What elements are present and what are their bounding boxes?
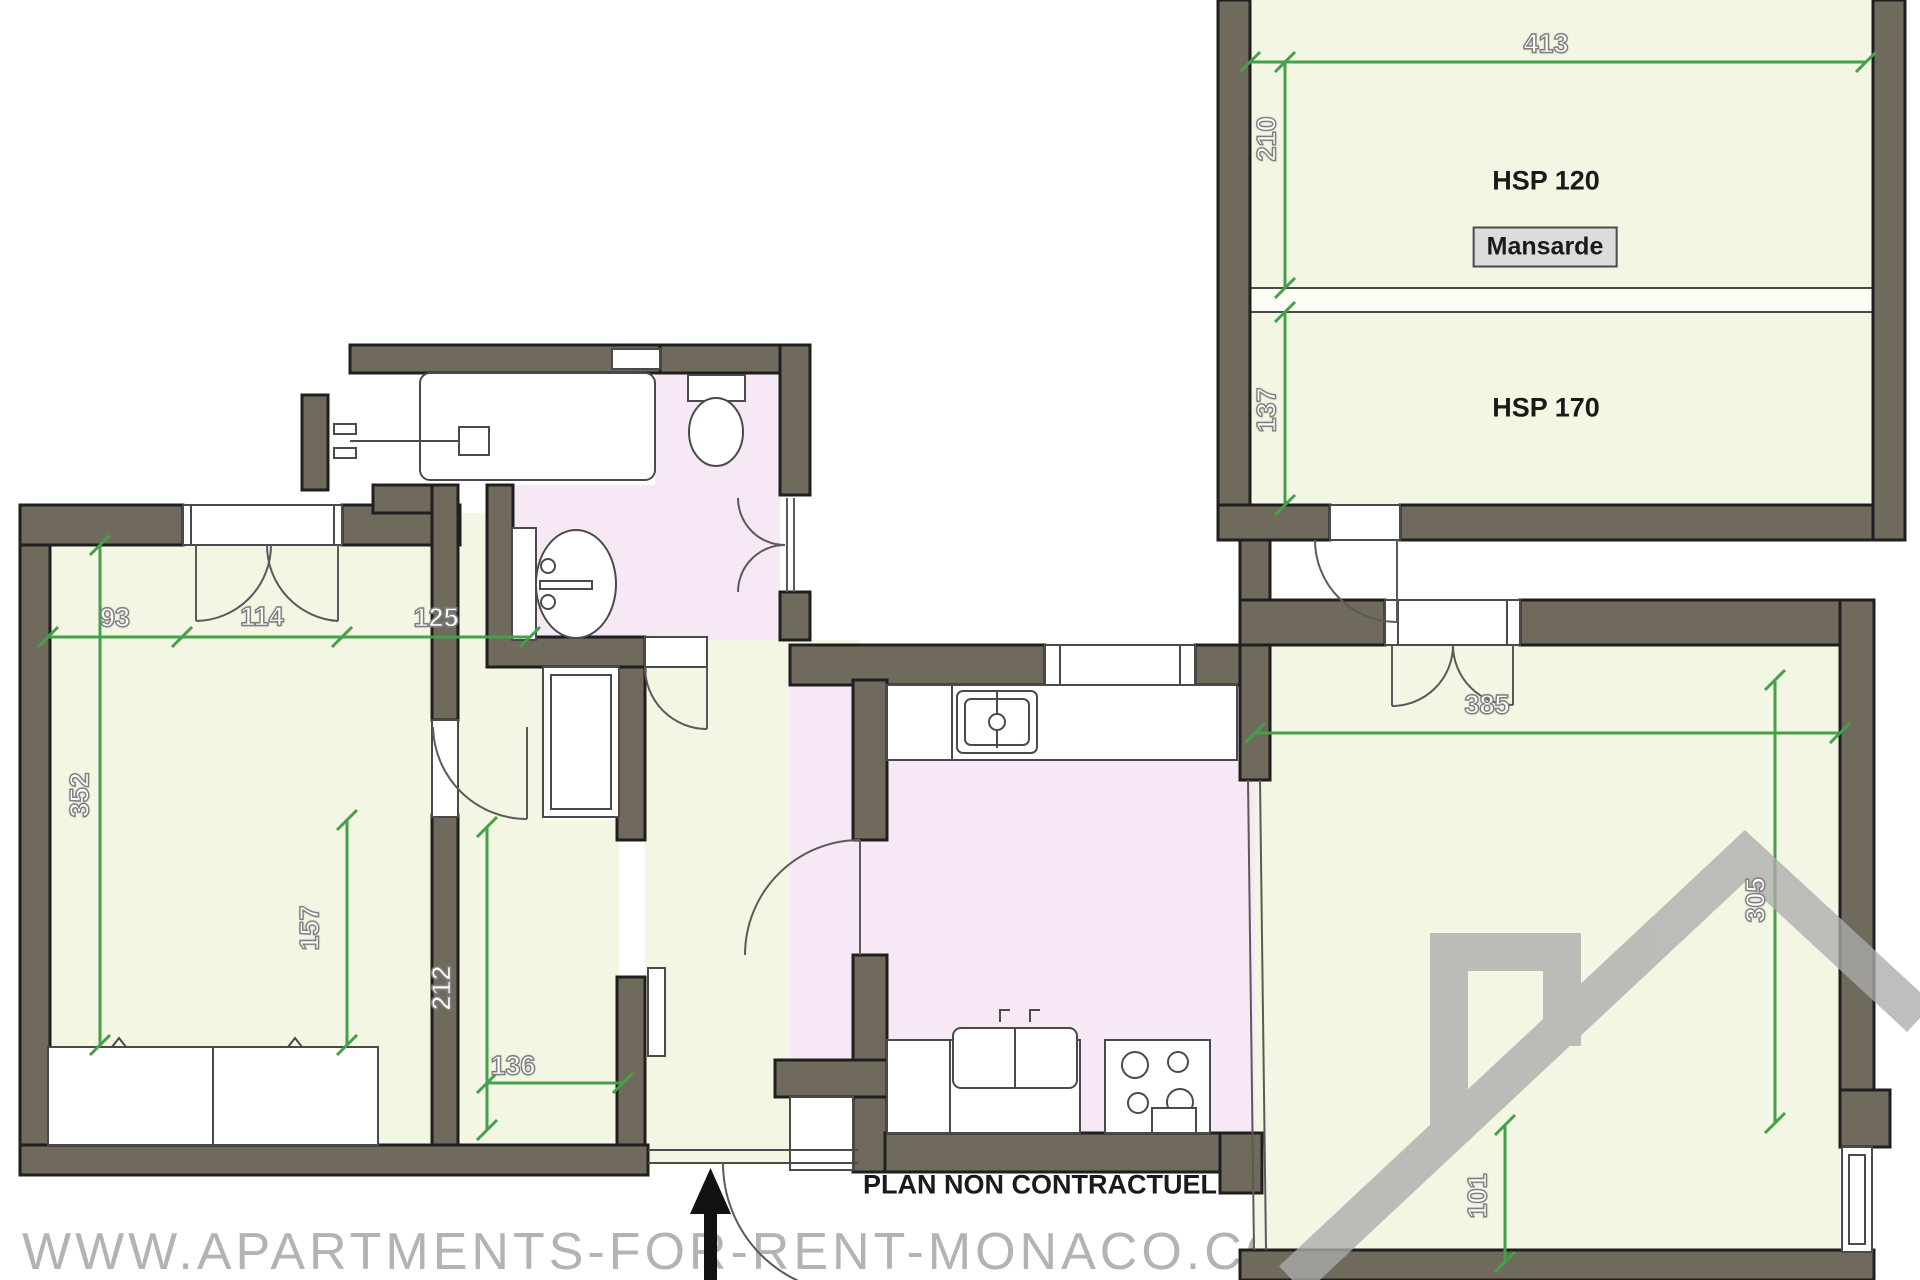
left-room-window [183, 505, 342, 545]
laundry-window [612, 349, 660, 369]
middle-room [458, 820, 619, 1145]
stove [1105, 1040, 1210, 1133]
floor-plan: WWW.APARTMENTS-FOR-RENT-MONACO.COM [0, 0, 1920, 1280]
left-room-closet [48, 1038, 378, 1145]
mansarde-door-frame [1330, 505, 1400, 540]
bathroom-sink [512, 528, 616, 640]
radiator [648, 968, 665, 1056]
kitchen-window [1045, 645, 1195, 685]
toilet [688, 375, 745, 466]
right-room-window [1842, 1147, 1872, 1252]
oven [1152, 1108, 1196, 1133]
bathtub-faucet-icon [334, 424, 489, 458]
bathtub [420, 373, 655, 480]
entrance-recess [790, 1097, 853, 1170]
right-room-door-frame [1385, 600, 1520, 645]
mansarde-divider [1250, 288, 1873, 312]
mansarde-room [1250, 0, 1873, 505]
floor-plan-canvas [0, 0, 1920, 1280]
kitchen-counter-top [887, 685, 1237, 760]
hall-closet [543, 667, 619, 817]
